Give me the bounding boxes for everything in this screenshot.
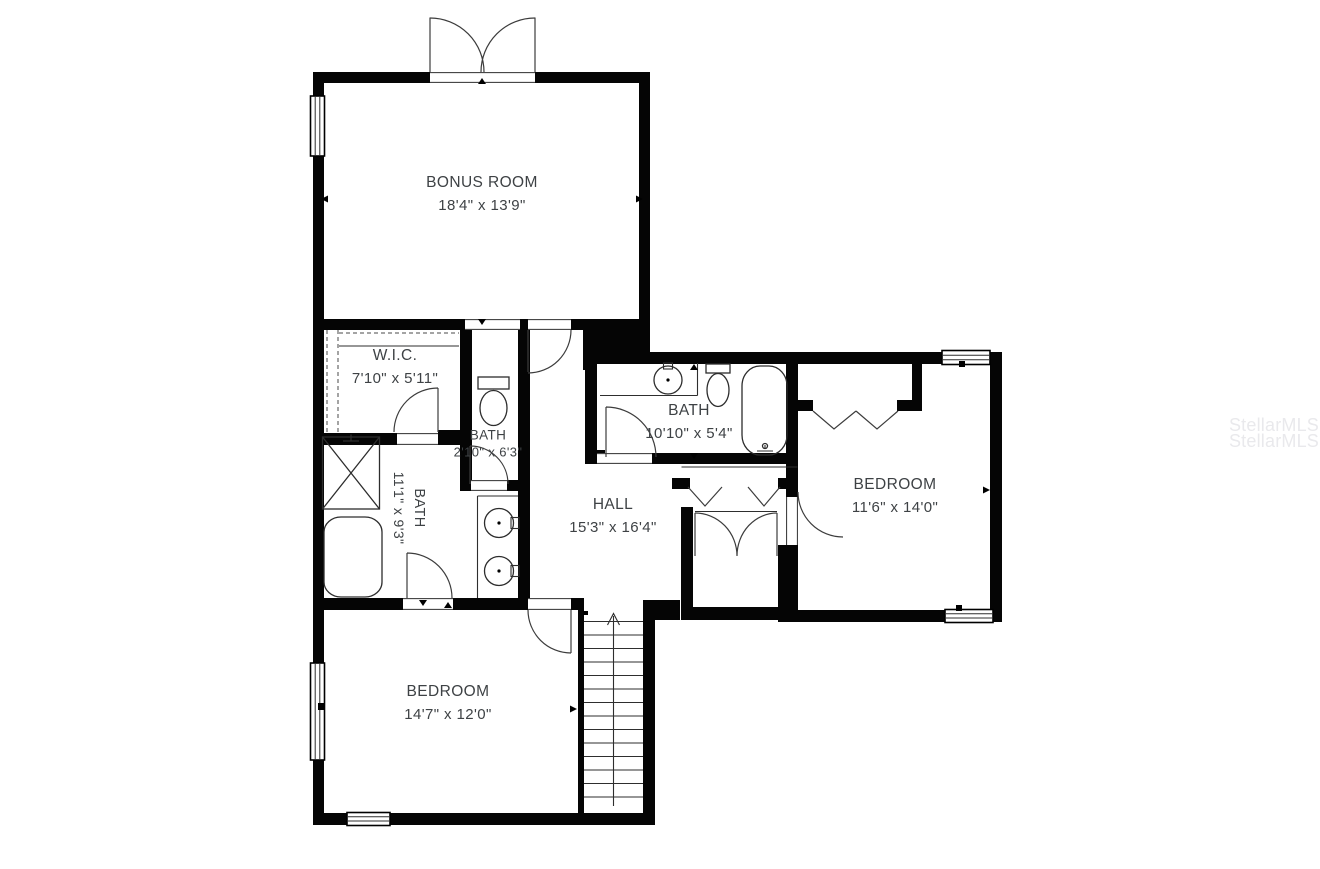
room-name: BATH [454,427,523,444]
room-label-master-bath: BATH 11'1" x 9'3" [389,472,429,545]
wall [507,480,518,491]
wall [672,478,690,489]
sink-faucet [511,566,519,577]
wall [786,364,798,497]
wall [571,319,583,330]
wall [535,72,650,83]
room-dimensions: 14'7" x 12'0" [404,703,491,726]
room-dimensions: 7'10" x 5'11" [352,367,438,390]
door-bedroom-lower [528,610,571,653]
stair-landing-mark [583,611,588,615]
room-label-water-closet: BATH 2'10" x 6'3" [454,427,523,462]
wall [639,72,650,330]
stellar-mls-watermark: StellarMLS StellarMLS [1213,418,1319,449]
double-door-hall-closet [695,512,777,557]
room-label-bedroom-lower: BEDROOM 14'7" x 12'0" [404,680,491,726]
room-dimensions: 2'10" x 6'3" [454,444,523,462]
room-name: HALL [569,493,656,516]
wall [313,319,465,330]
toilet-water-closet [478,377,509,426]
wall [578,598,584,813]
wall [313,433,397,445]
room-label-bonus-room: BONUS ROOM 18'4" x 13'9" [426,171,538,217]
door-bedroom-right [798,492,843,537]
room-name: BATH [645,399,732,422]
wall [643,620,655,813]
window-bedroom-bottom [347,813,390,826]
room-name: W.I.C. [352,344,438,367]
room-name: BATH [409,472,429,545]
sink-faucet [511,518,519,529]
bathtub-master [324,517,382,597]
wall [778,478,798,489]
wall [313,156,324,663]
wall [681,507,693,620]
wall [453,598,528,610]
dimension-arrow [570,706,577,713]
room-dimensions: 15'3" x 16'4" [569,516,656,539]
watermark-line: StellarMLS [1213,434,1319,450]
room-label-hall: HALL 15'3" x 16'4" [569,493,656,539]
window-bedroom-left [311,663,326,760]
vanity-upper-bath [600,363,698,396]
wall [313,813,347,825]
wall [643,600,680,620]
room-dimensions: 10'10" x 5'4" [645,422,732,445]
room-name: BEDROOM [404,680,491,703]
wall [313,598,403,610]
room-label-wic: W.I.C. 7'10" x 5'11" [352,344,438,390]
vanity-master [478,496,520,598]
room-label-bedroom-right: BEDROOM 11'6" x 14'0" [852,473,938,519]
room-name: BONUS ROOM [426,171,538,194]
wall [583,319,597,370]
bathtub-upper-bath [742,366,787,455]
wall [990,352,1002,622]
wall [390,813,655,825]
room-dimensions: 18'4" x 13'9" [426,194,538,217]
window-bonus-left [311,96,325,156]
door-hall-from-bonus [528,330,571,373]
wall [313,72,324,96]
wall [585,370,597,464]
wall [652,453,798,464]
wall [313,72,430,83]
double-door-bonus-entry [430,18,535,73]
room-name: BEDROOM [852,473,938,496]
dimension-arrow [983,487,990,494]
door-master-bath [407,553,452,598]
floor-plan: BONUS ROOM 18'4" x 13'9" W.I.C. 7'10" x … [0,0,1320,869]
wall [780,610,945,622]
window-bedroom-right-bottom [945,605,993,623]
room-dimensions: 11'6" x 14'0" [852,496,938,519]
bifold-doors-bedroom-closet [813,411,898,429]
wall [681,607,798,620]
shower [323,435,380,510]
wall [897,400,922,411]
stairs [583,611,643,806]
wall [597,352,942,364]
wall [798,400,813,411]
room-dimensions: 11'1" x 9'3" [389,472,409,545]
room-label-upper-bath: BATH 10'10" x 5'4" [645,399,732,445]
threshold-mark [690,364,698,370]
door-wic [394,388,438,432]
window-bedroom-right-top [942,351,990,368]
